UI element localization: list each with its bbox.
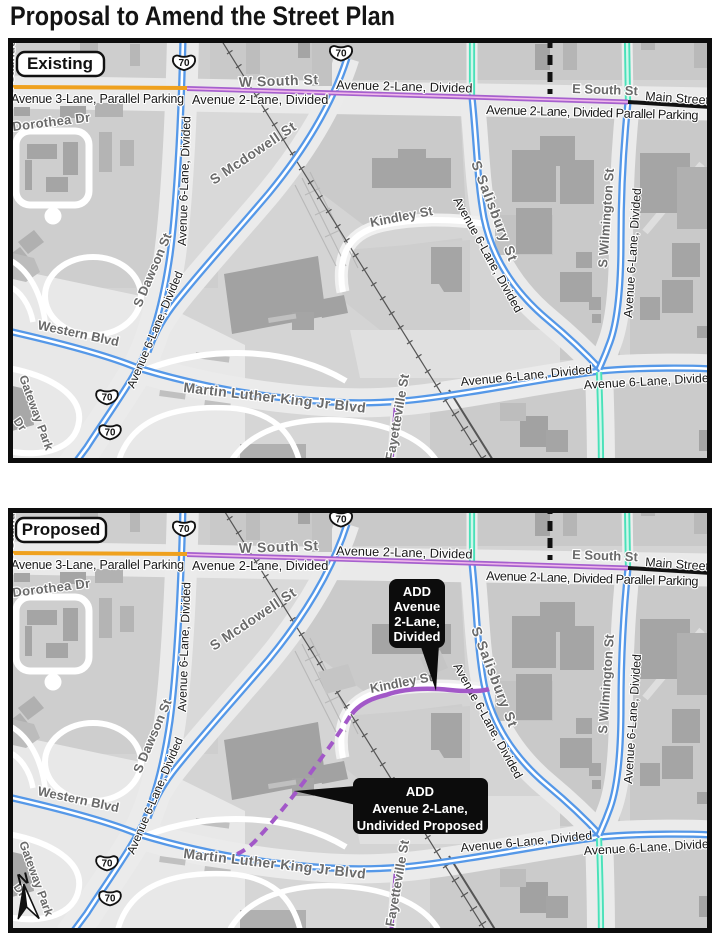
svg-text:Proposed: Proposed	[22, 520, 100, 539]
svg-text:ADD: ADD	[406, 784, 434, 799]
svg-text:Existing: Existing	[27, 54, 93, 73]
svg-text:Proposal to Amend the Street P: Proposal to Amend the Street Plan	[10, 1, 395, 31]
svg-text:Divided: Divided	[394, 629, 441, 644]
svg-text:2-Lane,: 2-Lane,	[394, 614, 440, 629]
svg-text:Avenue: Avenue	[394, 599, 440, 614]
svg-text:Undivided Proposed: Undivided Proposed	[357, 818, 483, 833]
svg-text:Avenue 2-Lane,: Avenue 2-Lane,	[372, 801, 468, 816]
svg-text:ADD: ADD	[403, 584, 431, 599]
